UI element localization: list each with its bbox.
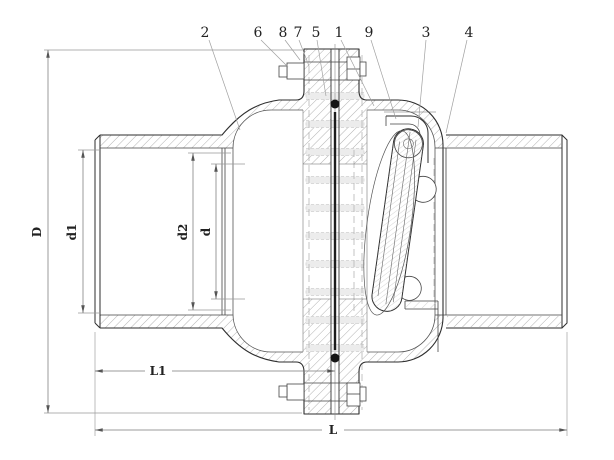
right-socket-outline	[446, 135, 567, 328]
part-label-1: 1	[335, 25, 344, 41]
top-stud	[287, 63, 304, 79]
right-bore-lines	[435, 148, 562, 315]
dim-label-d2: d2	[176, 224, 190, 241]
top-nut	[347, 57, 360, 80]
left-body-half-section	[100, 49, 331, 414]
dim-label-D: D	[30, 227, 44, 237]
part-label-6: 6	[254, 25, 263, 41]
left-bore-lines	[100, 148, 233, 315]
dim-label-L: L	[329, 423, 338, 437]
part-label-3: 3	[422, 25, 431, 41]
part-label-7: 7	[294, 25, 303, 41]
part-labels: 2 6 8 7 5 1 9 3 4	[201, 25, 474, 41]
right-socket-bottom-wall	[447, 316, 561, 327]
part-label-4: 4	[465, 25, 474, 41]
bottom-stud-end	[279, 386, 287, 397]
bottom-bolt-dot	[331, 354, 340, 363]
dim-label-d1: d1	[65, 224, 79, 241]
bottom-nut	[347, 383, 360, 406]
dim-label-d: d	[199, 227, 213, 236]
top-nut-tip	[360, 62, 366, 76]
right-pipe-end	[435, 135, 567, 328]
top-bolt-dot	[331, 100, 340, 109]
leader-line-2	[209, 40, 240, 130]
disc-assembly	[354, 125, 444, 321]
valve-sectional-drawing: 2 6 8 7 5 1 9 3 4 D d1	[0, 0, 614, 460]
part-label-5: 5	[312, 25, 321, 41]
leader-line-4	[446, 40, 467, 133]
dim-label-L1: L1	[150, 364, 167, 378]
top-stud-end	[279, 66, 287, 77]
bottom-stud	[287, 384, 304, 400]
center-flange-joint	[331, 44, 340, 420]
body-section-hatch	[100, 49, 561, 414]
body-outline-top	[100, 49, 443, 145]
seat-ledge-hatch	[406, 302, 437, 308]
part-label-9: 9	[365, 25, 374, 41]
drawing-svg: 2 6 8 7 5 1 9 3 4 D d1	[0, 0, 614, 460]
bottom-nut-tip	[360, 387, 366, 401]
right-socket-top-wall	[447, 136, 561, 147]
left-end-cap	[95, 135, 100, 328]
leader-line-6	[261, 40, 288, 67]
chamber-left	[233, 110, 303, 352]
part-label-2: 2	[201, 25, 210, 41]
part-label-8: 8	[279, 25, 288, 41]
